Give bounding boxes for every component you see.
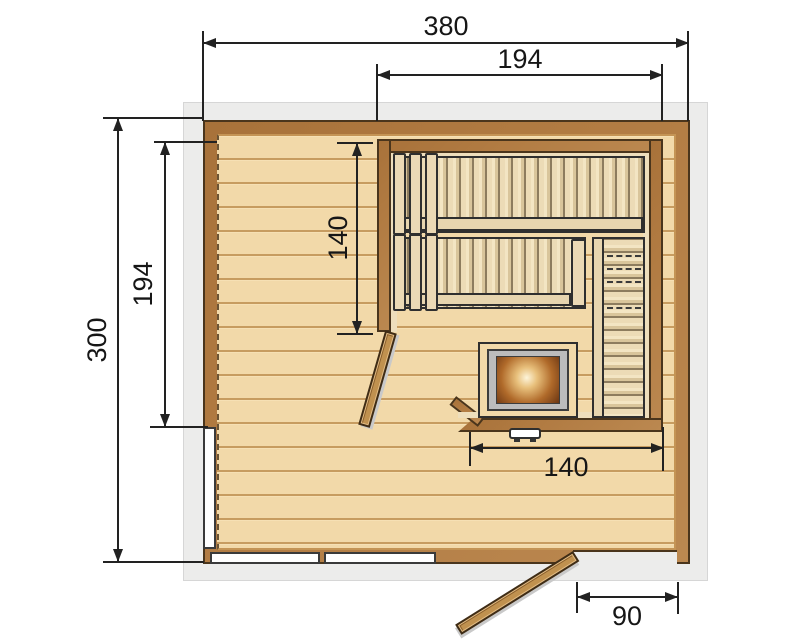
dimension-cabin-inner-width-label: 140: [526, 452, 606, 482]
bench-side-slat-groove: [607, 307, 641, 309]
dimension-top-inner-width-label: 194: [480, 44, 560, 74]
dimension-top-inner-width-line: [377, 74, 663, 76]
bench-lower-headrest-plank: [409, 234, 422, 311]
dimension-cabin-inner-depth-line: [356, 143, 358, 334]
dimension-door-width-line: [577, 596, 678, 598]
window-bottom-wall-2: [324, 552, 436, 564]
cabin-wall-top: [377, 139, 663, 153]
heater-control-foot: [514, 439, 520, 442]
bench-upper-headrest-plank: [409, 153, 422, 235]
heater-control: [509, 428, 541, 439]
cabin-wall-bottom: [458, 418, 663, 432]
bench-side-slat-groove: [607, 268, 641, 270]
bench-lower-end-plank: [571, 239, 586, 307]
dimension-left-inner-depth-line: [164, 142, 166, 427]
dimension-overall-width-label: 380: [406, 11, 486, 41]
dimension-left-inner-depth-label: 194: [128, 244, 158, 324]
bench-upper-headrest-plank: [425, 153, 438, 235]
cabin-wall-left: [377, 139, 391, 332]
window-bottom-wall-1: [210, 552, 320, 564]
sauna-floor-plan: 380 194 300 194 140 140 90: [0, 0, 800, 640]
bench-lower-headrest-plank: [425, 234, 438, 311]
heater-control-foot: [530, 439, 536, 442]
dimension-overall-depth-line: [117, 118, 119, 562]
bench-upper-headrest-plank: [393, 153, 406, 235]
cabin-wall-right: [649, 139, 663, 432]
dimension-overall-width-line: [203, 42, 689, 44]
heater-stones: [496, 356, 560, 404]
extension-line: [150, 426, 208, 428]
entrance-door-opening: [573, 550, 677, 565]
bench-lower-headrest-plank: [393, 234, 406, 311]
dimension-door-width-label: 90: [587, 601, 667, 631]
bench-side-slat-groove: [607, 255, 641, 257]
dimension-overall-depth-label: 300: [82, 300, 112, 380]
bench-side-slat-groove: [607, 281, 641, 283]
dimension-cabin-inner-depth-label: 140: [323, 198, 353, 278]
window-left-wall: [203, 427, 216, 549]
bench-side-rail: [592, 237, 604, 418]
dimension-cabin-inner-width-line: [470, 447, 664, 449]
